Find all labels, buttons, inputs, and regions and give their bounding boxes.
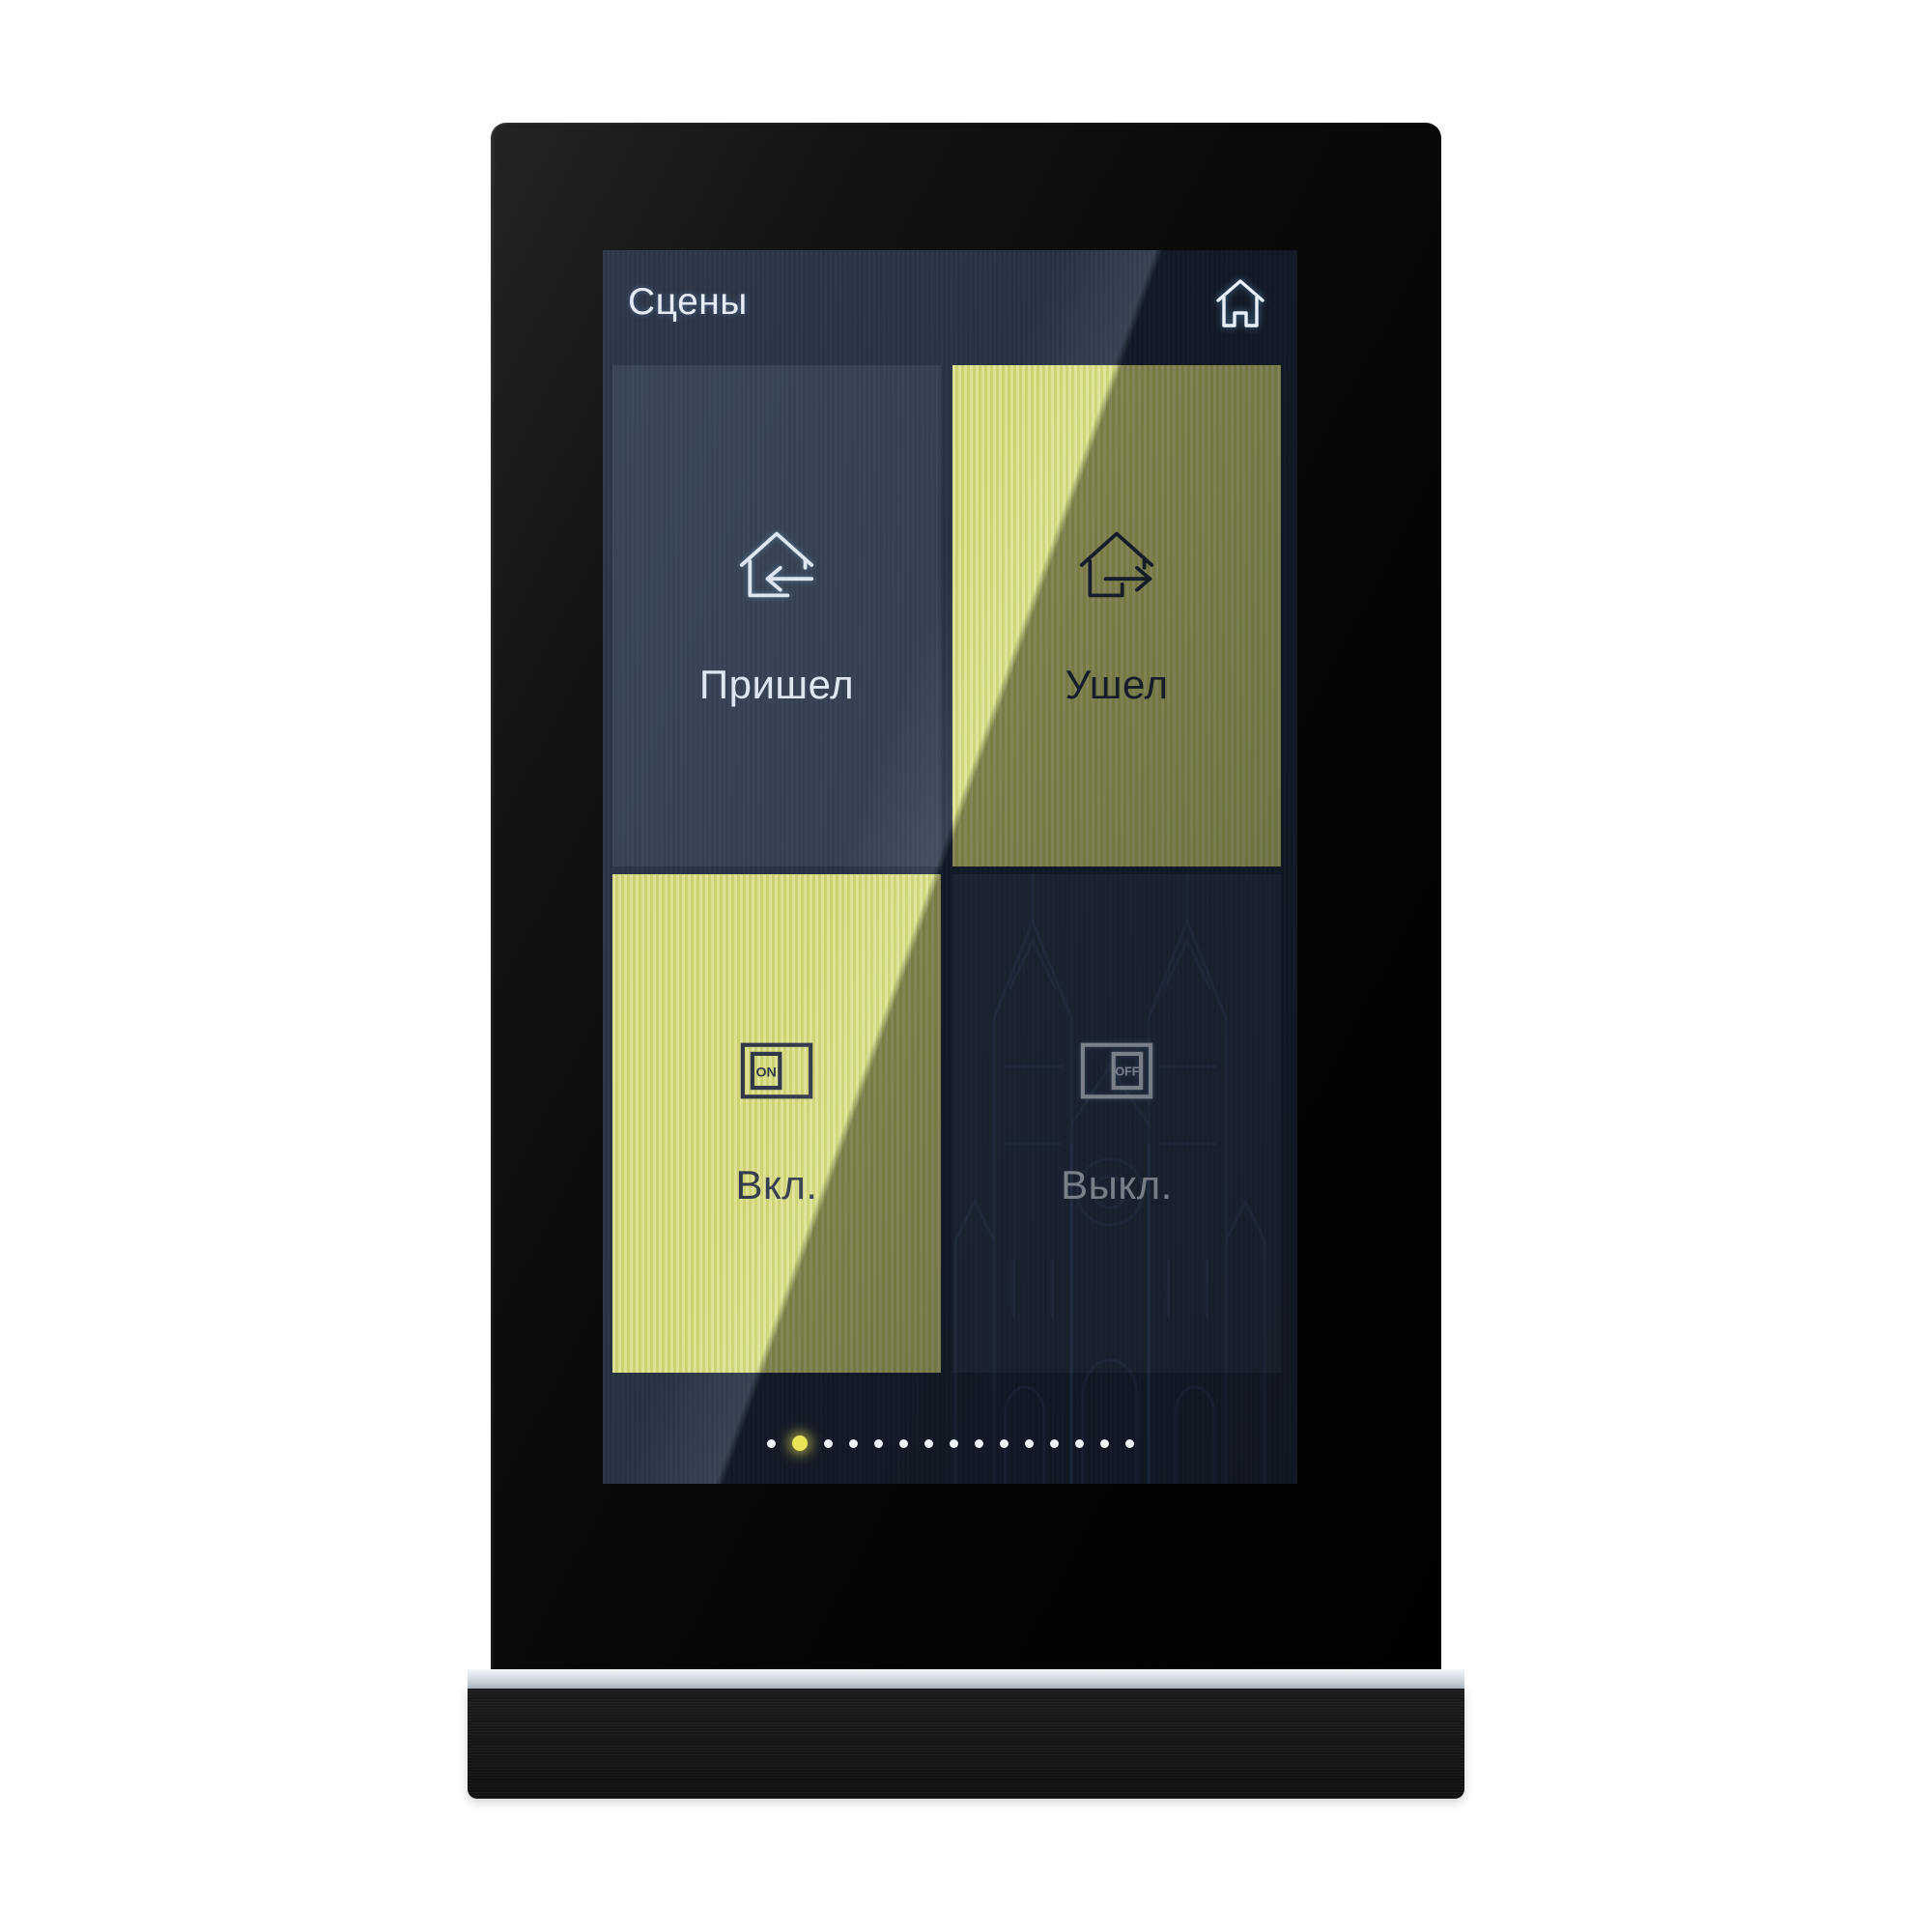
accent-light-strip <box>468 1669 1464 1689</box>
page-dot[interactable] <box>1050 1439 1059 1448</box>
scene-tile-came-home[interactable]: Пришел <box>612 365 941 867</box>
tile-label: Выкл. <box>1061 1162 1173 1208</box>
page-dot[interactable] <box>1125 1439 1134 1448</box>
page-dot[interactable] <box>874 1439 883 1448</box>
touch-panel-device: Сцены <box>468 123 1464 1799</box>
scene-tile-left-home[interactable]: Ушел <box>952 365 1281 867</box>
photo-background: Сцены <box>0 0 1932 1932</box>
page-dot[interactable] <box>1075 1439 1084 1448</box>
page-title: Сцены <box>628 281 748 324</box>
switch-off-icon: OFF <box>1076 1038 1157 1108</box>
page-dot[interactable] <box>975 1439 983 1448</box>
house-arrow-in-icon <box>732 524 821 608</box>
page-dot[interactable] <box>1025 1439 1034 1448</box>
scene-tile-off[interactable]: OFF Выкл. <box>952 874 1281 1373</box>
page-indicator[interactable] <box>603 1435 1297 1451</box>
tile-label: Ушел <box>1065 662 1169 708</box>
device-base <box>468 1689 1464 1799</box>
home-icon[interactable] <box>1212 273 1268 337</box>
svg-text:OFF: OFF <box>1115 1065 1139 1079</box>
touchscreen: Сцены <box>603 250 1297 1484</box>
house-arrow-out-icon <box>1072 524 1161 608</box>
scene-tile-on[interactable]: ON Вкл. <box>612 874 941 1373</box>
page-dot[interactable] <box>767 1439 776 1448</box>
screen-header: Сцены <box>603 250 1297 364</box>
page-dot[interactable] <box>849 1439 858 1448</box>
switch-on-icon: ON <box>736 1038 817 1108</box>
tile-label: Вкл. <box>735 1162 817 1208</box>
page-dot[interactable] <box>824 1439 833 1448</box>
tile-label: Пришел <box>699 662 854 708</box>
page-dot[interactable] <box>1100 1439 1109 1448</box>
page-dot-active[interactable] <box>792 1435 808 1451</box>
page-dot[interactable] <box>899 1439 908 1448</box>
page-dot[interactable] <box>950 1439 958 1448</box>
svg-text:ON: ON <box>755 1065 776 1080</box>
page-dot[interactable] <box>924 1439 933 1448</box>
page-dot[interactable] <box>1000 1439 1009 1448</box>
scene-tile-grid: Пришел Ушел <box>612 365 1281 1373</box>
